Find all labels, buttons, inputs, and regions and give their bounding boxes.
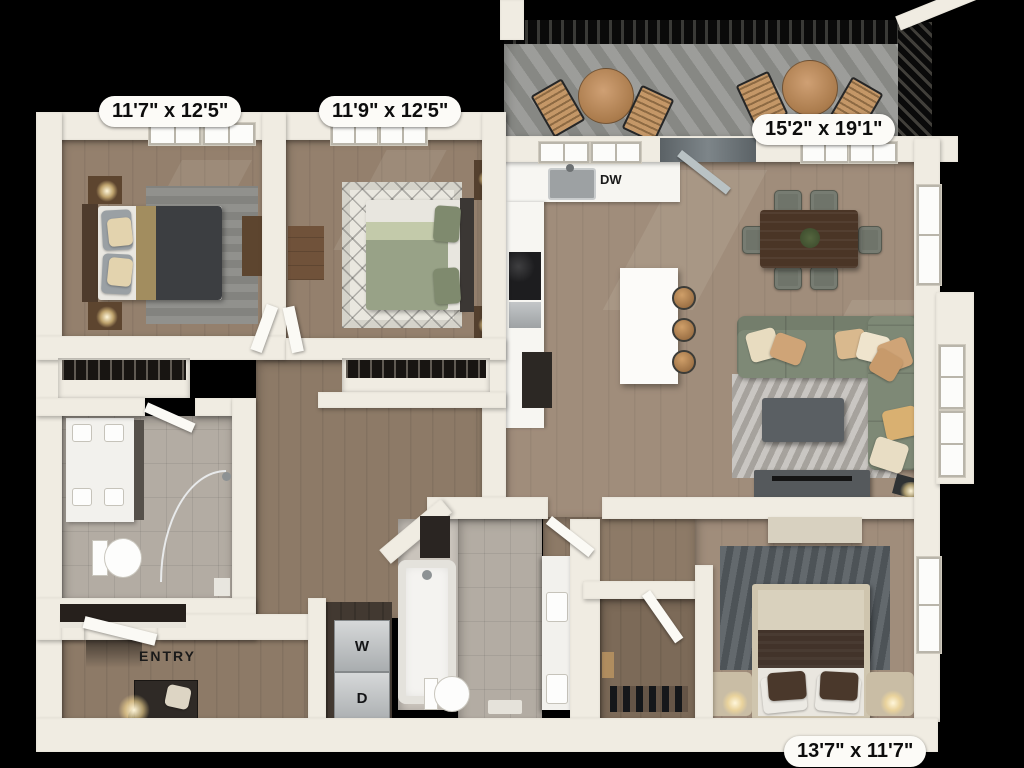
dryer-label: D (357, 690, 368, 707)
ottoman-lamp-glow (722, 690, 748, 716)
wall-bedroom2-kitchen (482, 112, 506, 515)
bar-stool (672, 318, 696, 342)
bathroom2-niche (420, 516, 450, 558)
kitchen-faucet (566, 164, 574, 172)
washer-unit: W (334, 620, 390, 672)
bathroom1-east-wall (232, 398, 256, 620)
bedroom3-window (916, 556, 942, 654)
balcony-lattice-panel (898, 22, 932, 140)
bench-pillow (164, 684, 192, 711)
laundry-west-wall (308, 598, 326, 722)
kitchen-island (620, 268, 678, 384)
kitchen-window (590, 141, 642, 164)
bed-accent-pillow (819, 671, 858, 701)
closet2-shoes (346, 360, 486, 378)
dishwasher-label: DW (600, 172, 622, 187)
closet2-south-wall (318, 392, 506, 408)
bedroom1-dresser (242, 216, 262, 276)
ottoman-lamp-glow (880, 690, 906, 716)
bedroom3-blanket-band (758, 630, 864, 668)
vanity-sink (104, 424, 124, 442)
balcony-door-opening (660, 138, 756, 162)
dining-chair (810, 266, 838, 290)
bar-stool (672, 350, 696, 374)
tv-console (754, 470, 870, 500)
kitchen-window (538, 141, 590, 164)
vanity-sink (72, 424, 92, 442)
vanity-sink (72, 488, 92, 506)
entry-label: ENTRY (139, 648, 196, 664)
shower-head (222, 472, 231, 481)
bed-accent-pillow (107, 257, 134, 287)
bath-mat (488, 700, 522, 714)
bed-pillow (433, 267, 461, 305)
vanity-sink (546, 592, 568, 622)
bedroom2-dresser (288, 226, 324, 280)
bathroom2-tile-floor (458, 519, 542, 724)
nightstand-lamp-glow (96, 306, 118, 328)
dining-window-side (916, 184, 942, 286)
bedroom1-blanket-band (136, 206, 156, 300)
balcony-corner-beam (895, 0, 977, 30)
bathroom1-vanity-cabinet (134, 420, 144, 520)
balcony-post (500, 0, 524, 40)
closet-north-wall (583, 581, 695, 599)
bathtub-faucet (422, 570, 432, 580)
tv-screen (772, 476, 852, 481)
toilet-bowl (104, 538, 142, 578)
closet1-south-wall (36, 398, 145, 416)
bed-accent-pillow (767, 671, 807, 702)
bedroom1-dimension-label: 11'7" x 12'5" (99, 96, 241, 127)
washer-label: W (355, 638, 369, 655)
living-window (938, 344, 966, 410)
bar-stool (672, 286, 696, 310)
toilet-bowl (434, 676, 470, 712)
wall-bedroom2-south (286, 338, 506, 360)
closet-shelf (602, 652, 614, 678)
floorplan-canvas: DW (0, 0, 1024, 768)
wall-bedroom1-south (36, 336, 286, 360)
balcony-dimension-label: 15'2" x 19'1" (752, 114, 895, 145)
bedroom3-dimension-label: 13'7" x 11'7" (784, 736, 926, 767)
bedroom1-headboard (82, 204, 98, 302)
oven (509, 302, 541, 328)
kitchen-sink (548, 168, 596, 200)
balcony-railing (504, 20, 920, 44)
bedroom3-wall-cabinet (768, 517, 862, 543)
kitchen-tall-cabinet (522, 352, 552, 408)
bed-accent-pillow (107, 217, 134, 247)
bathroom1-north-wall (195, 398, 232, 416)
bedroom3-west-wall (695, 565, 713, 722)
dining-chair (858, 226, 882, 254)
coffee-table (762, 398, 844, 442)
living-south-wall-right (602, 497, 917, 519)
vanity-sink (546, 674, 568, 704)
nightstand-lamp-glow (96, 180, 118, 202)
living-window (938, 410, 966, 478)
vanity-sink (104, 488, 124, 506)
closet-shoe-row (610, 686, 688, 712)
table-plant (800, 228, 820, 248)
entry-door-shadow (86, 640, 142, 668)
cooktop (509, 252, 541, 300)
patio-table (782, 60, 838, 116)
dryer-unit: D (334, 672, 390, 724)
bedroom2-dimension-label: 11'9" x 12'5" (319, 96, 461, 127)
patio-table (578, 68, 634, 124)
bed-pillow (433, 205, 461, 243)
dining-chair (774, 266, 802, 290)
bedroom1-duvet (156, 206, 222, 300)
bedroom2-headboard (460, 198, 474, 312)
closet1-shoes (62, 360, 186, 380)
bedroom3-bed-head-section (758, 590, 864, 630)
